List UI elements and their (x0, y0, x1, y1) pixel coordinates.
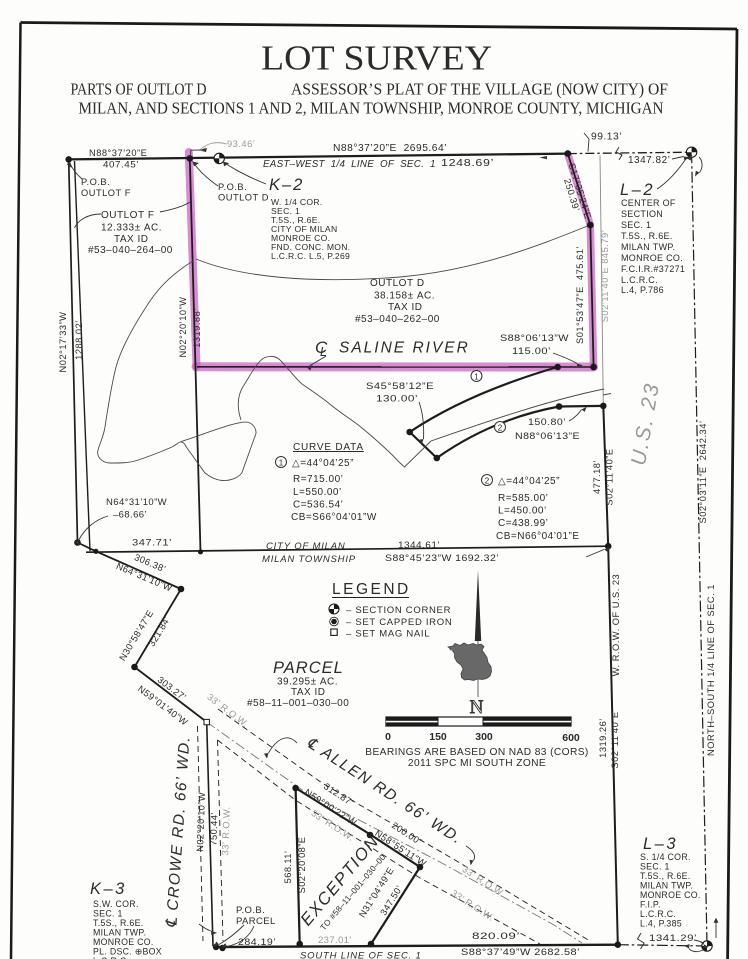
svg-text:– SET MAG NAIL: – SET MAG NAIL (346, 629, 430, 640)
svg-text:T.5S., R.6E.: T.5S., R.6E. (93, 918, 144, 928)
svg-text:△=44°04’25”: △=44°04’25” (292, 458, 354, 469)
svg-text:1319.88’: 1319.88’ (192, 308, 202, 348)
svg-text:S02°03’11”E 2642.34’: S02°03’11”E 2642.34’ (698, 421, 708, 524)
svg-text:1347.82’: 1347.82’ (628, 155, 670, 166)
svg-text:EAST–WEST 1/4 LINE OF SEC.: EAST–WEST 1/4 LINE OF SEC. 1 (263, 159, 436, 170)
svg-text:S.W. COR.: S.W. COR. (93, 899, 139, 909)
svg-text:N02°20’10”W: N02°20’10”W (195, 792, 207, 852)
svg-text:600: 600 (562, 732, 580, 744)
svg-text:L=450.00’: L=450.00’ (498, 506, 547, 517)
svg-text:MILAN, AND SECTIONS 1 AND 2, M: MILAN, AND SECTIONS 1 AND 2, MILAN TOWNS… (79, 99, 664, 118)
svg-text:LOT SURVEY: LOT SURVEY (261, 39, 492, 78)
svg-text:115.00’: 115.00’ (512, 346, 551, 357)
svg-text:1344.61’: 1344.61’ (398, 540, 440, 551)
svg-text:S. 1/4 COR.: S. 1/4 COR. (640, 852, 691, 862)
svg-text:99.13’: 99.13’ (591, 132, 622, 143)
svg-text:130.00’: 130.00’ (376, 394, 418, 405)
svg-text:R=585.00’: R=585.00’ (498, 493, 548, 504)
svg-text:2011 SPC MI SOUTH ZONE: 2011 SPC MI SOUTH ZONE (408, 758, 546, 769)
svg-text:F.I.P.: F.I.P. (640, 900, 661, 910)
svg-text:C=536.54’: C=536.54’ (293, 500, 343, 511)
svg-text:0: 0 (385, 731, 391, 743)
svg-text:1: 1 (279, 459, 284, 468)
svg-text:S02°11’40”E: S02°11’40”E (610, 711, 620, 768)
svg-text:CB=S66°04’01”W: CB=S66°04’01”W (291, 512, 377, 523)
svg-text:300: 300 (475, 731, 493, 743)
svg-text:750.44’: 750.44’ (208, 812, 219, 846)
svg-text:MONROE CO.: MONROE CO. (621, 253, 683, 263)
svg-text:MILAN TWP.: MILAN TWP. (621, 242, 675, 252)
svg-text:#53–040–264–00: #53–040–264–00 (88, 245, 173, 256)
svg-text:BEARINGS ARE BASED ON NAD 83 (: BEARINGS ARE BASED ON NAD 83 (CORS) (365, 747, 588, 758)
svg-text:S88°37’49”W 2682.58’: S88°37’49”W 2682.58’ (461, 947, 580, 958)
svg-text:150: 150 (429, 731, 447, 743)
svg-text:△=44°04’25”: △=44°04’25” (498, 476, 560, 487)
svg-text:L=550.00’: L=550.00’ (293, 487, 342, 498)
svg-text:2: 2 (485, 477, 490, 486)
svg-text:P.O.B.: P.O.B. (81, 177, 110, 187)
svg-text:MILAN TWP.: MILAN TWP. (640, 881, 693, 891)
svg-text:MONROE CO.: MONROE CO. (640, 890, 701, 900)
svg-text:W. R.O.W. OF U.S. 23: W. R.O.W. OF U.S. 23 (611, 574, 621, 676)
svg-text:R=715.00’: R=715.00’ (293, 474, 343, 485)
svg-text:ASSESSOR’S PLAT OF THE VILLAGE: ASSESSOR’S PLAT OF THE VILLAGE (NOW CITY… (291, 80, 668, 99)
svg-text:PARCEL: PARCEL (236, 916, 276, 927)
svg-text:T.5S., R.6E.: T.5S., R.6E. (640, 871, 691, 881)
svg-text:L.C.R.C.: L.C.R.C. (621, 275, 658, 285)
svg-text:150.80’: 150.80’ (528, 417, 566, 428)
svg-text:568.11’: 568.11’ (283, 851, 293, 884)
svg-text:NORTH–SOUTH 1/4 LINE OF SEC. 1: NORTH–SOUTH 1/4 LINE OF SEC. 1 (706, 584, 716, 756)
svg-text:N02°20’10”W: N02°20’10”W (178, 297, 188, 358)
svg-text:MILAN TWP.: MILAN TWP. (93, 928, 146, 938)
svg-text:OUTLOT F: OUTLOT F (81, 188, 131, 198)
svg-text:N88°06’13”E: N88°06’13”E (515, 431, 580, 442)
svg-text:38.158± AC.: 38.158± AC. (374, 291, 435, 302)
svg-text:39.295± AC.: 39.295± AC. (277, 677, 338, 688)
svg-text:S45°58’12”E: S45°58’12”E (366, 381, 434, 392)
svg-text:1319.26’: 1319.26’ (598, 718, 608, 758)
svg-text:S88°06’13”W: S88°06’13”W (500, 333, 569, 344)
svg-text:N64°31’10”W: N64°31’10”W (106, 497, 167, 508)
svg-text:S02°11’40”E: S02°11’40”E (605, 448, 615, 505)
svg-text:SECTION: SECTION (621, 209, 663, 219)
svg-text:347.71’: 347.71’ (132, 538, 172, 549)
svg-text:OUTLOT D: OUTLOT D (218, 193, 269, 203)
svg-text:N02°17’33”W: N02°17’33”W (58, 312, 68, 373)
svg-text:– SECTION CORNER: – SECTION CORNER (346, 605, 451, 616)
svg-text:C=438.99’: C=438.99’ (498, 518, 548, 529)
svg-text:2: 2 (498, 424, 503, 433)
svg-text:N: N (470, 697, 484, 718)
svg-text:PARTS OF OUTLOT D: PARTS OF OUTLOT D (71, 80, 207, 99)
svg-text:N88°37’20”E: N88°37’20”E (89, 148, 147, 158)
svg-text:PARCEL: PARCEL (273, 659, 344, 677)
svg-text:SEC. 1: SEC. 1 (93, 909, 123, 919)
svg-text:L–2: L–2 (620, 181, 655, 199)
svg-text:N88°37’20”E 2695.64’: N88°37’20”E 2695.64’ (333, 143, 447, 154)
svg-text:284.19’: 284.19’ (238, 937, 276, 948)
svg-text:93.46’: 93.46’ (227, 139, 255, 149)
svg-text:CURVE DATA: CURVE DATA (293, 442, 364, 453)
svg-text:33’ R.O.W.: 33’ R.O.W. (220, 806, 232, 855)
svg-text:#53–040–262–00: #53–040–262–00 (355, 314, 440, 325)
svg-text:SEC. 1: SEC. 1 (621, 220, 651, 230)
svg-text:820.09’: 820.09’ (472, 931, 520, 942)
svg-text:1: 1 (474, 373, 479, 382)
svg-text:12.333± AC.: 12.333± AC. (101, 223, 162, 234)
svg-text:477.18’: 477.18’ (592, 460, 602, 494)
svg-text:SALINE RIVER: SALINE RIVER (339, 340, 470, 357)
svg-text:PL. DSC. ⊕BOX: PL. DSC. ⊕BOX (93, 947, 162, 957)
svg-text:P.O.B.: P.O.B. (236, 905, 265, 916)
svg-text:407.45’: 407.45’ (103, 160, 139, 170)
svg-text:OUTLOT D: OUTLOT D (370, 278, 425, 289)
svg-text:P.O.B.: P.O.B. (218, 182, 247, 192)
svg-text:–68.66’: –68.66’ (113, 510, 147, 521)
svg-text:L.C.R.C.: L.C.R.C. (640, 909, 676, 919)
svg-text:F.C.I.R.#37271: F.C.I.R.#37271 (621, 264, 685, 274)
svg-text:S02’11’40”E 845.79’: S02’11’40”E 845.79’ (600, 230, 610, 323)
svg-text:– SET CAPPED IRON: – SET CAPPED IRON (346, 617, 452, 628)
svg-text:CITY OF MILAN: CITY OF MILAN (266, 541, 346, 552)
svg-text:K–2: K–2 (269, 176, 304, 194)
svg-text:LEGEND: LEGEND (332, 581, 411, 598)
svg-text:T.5S., R.6E.: T.5S., R.6E. (621, 231, 673, 241)
svg-text:SEC. 1: SEC. 1 (640, 862, 670, 872)
svg-text:SOUTH LINE OF SEC. 1: SOUTH LINE OF SEC. 1 (300, 951, 422, 959)
svg-text:L.C.R.C. L.5, P.269: L.C.R.C. L.5, P.269 (271, 251, 350, 261)
svg-text:1341.29’: 1341.29’ (649, 933, 697, 944)
svg-text:TAX ID: TAX ID (114, 234, 148, 245)
svg-text:MONROE CO.: MONROE CO. (93, 937, 154, 947)
svg-text:1288.02’: 1288.02’ (74, 320, 84, 360)
svg-text:1248.69’: 1248.69’ (441, 158, 494, 169)
svg-text:OUTLOT F: OUTLOT F (101, 210, 154, 221)
svg-text:K–3: K–3 (90, 880, 127, 898)
svg-text:L–3: L–3 (643, 835, 678, 853)
svg-text:L.4, P.786: L.4, P.786 (621, 285, 664, 295)
svg-text:L: L (320, 345, 327, 359)
svg-text:TAX ID: TAX ID (388, 302, 422, 313)
svg-text:S88°45’23”W 1692.32’: S88°45’23”W 1692.32’ (385, 553, 499, 564)
svg-text:CB=N66°04’01”E: CB=N66°04’01”E (496, 531, 580, 542)
svg-text:#58–11–001–030–00: #58–11–001–030–00 (247, 698, 349, 709)
svg-text:S01°53’47”E 475.61’: S01°53’47”E 475.61’ (575, 246, 585, 344)
svg-text:CENTER OF: CENTER OF (621, 198, 676, 208)
svg-text:MILAN TOWNSHIP: MILAN TOWNSHIP (262, 554, 356, 565)
svg-text:TAX ID: TAX ID (291, 687, 325, 698)
svg-text:237.01’: 237.01’ (318, 935, 352, 946)
svg-text:L.4, P.385: L.4, P.385 (640, 919, 682, 929)
svg-text:S02°20’08”E: S02°20’08”E (297, 837, 307, 894)
